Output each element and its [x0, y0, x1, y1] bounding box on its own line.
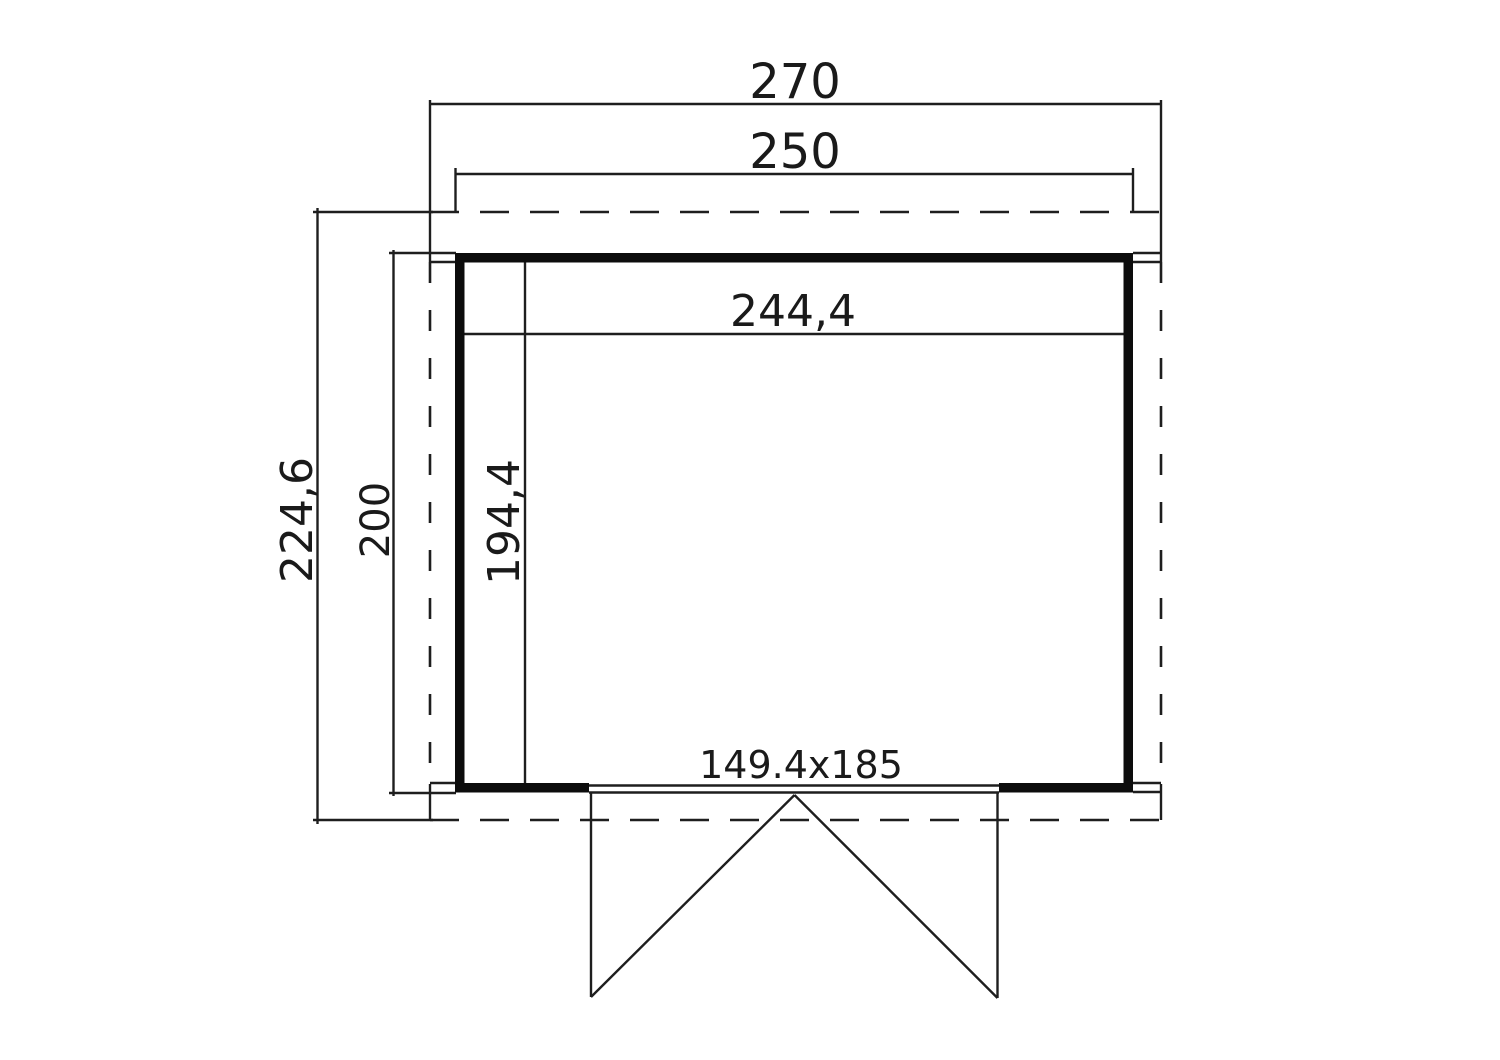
door-leaf-left-swing	[591, 795, 795, 997]
wall-bottom-left-segment	[455, 783, 589, 793]
wall-right	[1124, 253, 1134, 793]
wall-bottom-right-segment	[999, 783, 1133, 793]
double-door	[589, 786, 999, 999]
door-leaf-right-swing	[795, 795, 998, 998]
dimension-labels: 270 250 244,4 224,6 200 194,4 149.4x185	[272, 54, 903, 787]
dimension-lines	[313, 100, 1161, 824]
label-outer-width: 250	[749, 124, 841, 180]
label-inner-width: 244,4	[730, 286, 856, 337]
label-door-size: 149.4x185	[699, 743, 903, 787]
label-roof-width: 270	[749, 54, 841, 110]
floor-plan-canvas: 270 250 244,4 224,6 200 194,4 149.4x185	[0, 0, 1500, 1060]
label-outer-depth: 200	[353, 482, 399, 558]
wall-left	[455, 253, 465, 793]
label-roof-depth: 224,6	[272, 457, 323, 583]
label-inner-depth: 194,4	[479, 459, 530, 585]
floor-plan-drawing: 270 250 244,4 224,6 200 194,4 149.4x185	[0, 0, 1500, 1060]
wall-top	[455, 253, 1133, 263]
